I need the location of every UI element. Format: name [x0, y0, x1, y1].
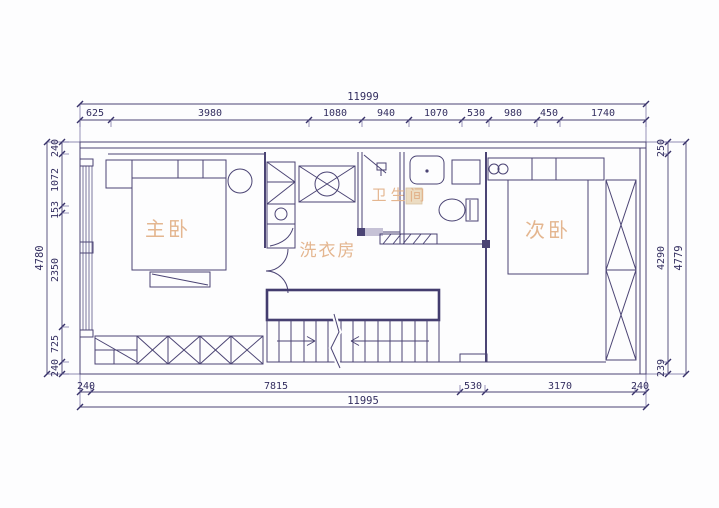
- room-label-laundry: 洗衣房: [300, 241, 357, 261]
- dim-bottom-seg-2: 530: [464, 381, 482, 392]
- room-label-second-bedroom: 次卧: [525, 218, 571, 242]
- dim-top-seg-1: 3980: [198, 108, 222, 119]
- washbasin: [410, 156, 444, 184]
- dim-bottom-seg-1: 7815: [264, 381, 288, 392]
- second-wardrobe: [606, 180, 636, 360]
- dim-right-seg-2: 239: [656, 359, 667, 377]
- master-bedroom: 主卧: [95, 152, 288, 364]
- headboard-shelf: [488, 158, 604, 180]
- dim-bottom-overall: 11995: [347, 395, 379, 407]
- dim-left-overall: 4780: [34, 245, 46, 270]
- dim-top-seg-8: 1740: [591, 108, 615, 119]
- dim-top-seg-6: 980: [504, 108, 522, 119]
- staircase: [267, 290, 439, 368]
- dim-top-seg-5: 530: [467, 108, 485, 119]
- dim-right-seg-0: 250: [656, 139, 667, 157]
- hallway-cabinet: [267, 162, 295, 248]
- shower-head-icon: [377, 163, 386, 176]
- bathroom: 卫生间: [357, 152, 490, 248]
- stair-landing: [267, 290, 439, 320]
- wall-node: [357, 228, 365, 236]
- dim-right-overall-line: 4779: [673, 139, 689, 377]
- dim-right-segment-line: 250 4290 239: [656, 139, 671, 377]
- bed-bench: [150, 272, 210, 287]
- master-wardrobe: [95, 336, 263, 364]
- dim-bottom-overall-line: 11995: [77, 395, 649, 410]
- dim-bottom-seg-0: 240: [77, 381, 95, 392]
- dim-top-segment-line: 625 3980 1080 940 1070 530 980 450 1740: [77, 108, 649, 127]
- dim-left-overall-line: 4780: [34, 139, 50, 377]
- dim-top-seg-7: 450: [540, 108, 558, 119]
- double-sink-icon: [489, 164, 508, 174]
- round-table: [228, 169, 252, 193]
- dim-bottom-segment-line: 240 7815 530 3170 240: [77, 381, 649, 395]
- dim-right-seg-1: 4290: [656, 246, 667, 270]
- dim-left-seg-2: 153: [50, 201, 61, 219]
- washing-machine: [299, 166, 355, 202]
- master-door-arc: [266, 249, 288, 293]
- laundry-room: 洗衣房: [299, 152, 362, 261]
- floor-plan-drawing: 11999 625 3980 1080 940 1070 530 980 450…: [0, 0, 719, 508]
- dim-left-segment-line: 240 1072 153 2350 725 240: [50, 139, 69, 377]
- dim-left-seg-1: 1072: [50, 168, 61, 192]
- dim-top-seg-4: 1070: [424, 108, 448, 119]
- window: [80, 159, 93, 337]
- dim-left-seg-0: 240: [50, 139, 61, 157]
- dim-right-overall: 4779: [673, 245, 685, 270]
- dim-left-seg-3: 2350: [50, 258, 61, 282]
- room-label-bathroom: 卫生间: [371, 186, 428, 204]
- dim-top-seg-0: 625: [86, 108, 104, 119]
- wall-step: [460, 354, 487, 362]
- dim-left-seg-4: 725: [50, 335, 61, 353]
- floor-plan-canvas: 11999 625 3980 1080 940 1070 530 980 450…: [0, 0, 719, 508]
- dim-top-seg-3: 940: [377, 108, 395, 119]
- dim-left-seg-5: 240: [50, 359, 61, 377]
- toilet: [439, 199, 478, 221]
- bathroom-counter: [452, 160, 480, 184]
- dim-top-overall: 11999: [347, 91, 379, 103]
- hatched-wall: [380, 234, 437, 244]
- dim-bottom-seg-4: 240: [631, 381, 649, 392]
- master-bed: [106, 160, 226, 270]
- dim-top-overall-line: 11999: [77, 91, 649, 107]
- dim-top-seg-2: 1080: [323, 108, 347, 119]
- room-label-master-bedroom: 主卧: [145, 217, 191, 241]
- dim-bottom-seg-3: 3170: [548, 381, 572, 392]
